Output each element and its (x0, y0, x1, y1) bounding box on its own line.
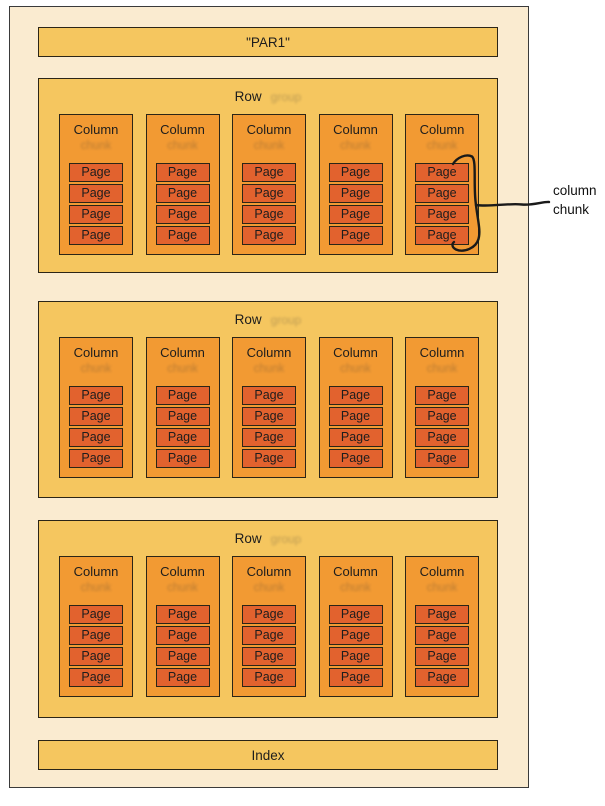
column-chunks-row: ColumnchunkPagePagePagePageColumnchunkPa… (59, 114, 479, 255)
pages-stack: PagePagePagePage (242, 605, 296, 687)
page-box: Page (329, 407, 383, 426)
row-group-label-text: Row (235, 531, 262, 546)
erased-text-remnant: chunk (147, 363, 219, 375)
column-chunk-box: ColumnchunkPagePagePagePage (319, 556, 393, 697)
erased-text-remnant: group (271, 532, 302, 546)
erased-text-remnant: chunk (233, 140, 305, 152)
column-label: Column (233, 564, 305, 579)
page-box: Page (242, 605, 296, 624)
page-box: Page (242, 647, 296, 666)
page-box: Page (415, 449, 469, 468)
pages-stack: PagePagePagePage (156, 605, 210, 687)
column-label: Column (320, 564, 392, 579)
erased-text-remnant: chunk (60, 363, 132, 375)
index-bar: Index (38, 740, 498, 770)
row-group: RowgroupColumnchunkPagePagePagePageColum… (38, 78, 498, 273)
pages-stack: PagePagePagePage (329, 605, 383, 687)
page-box: Page (329, 449, 383, 468)
column-chunk-box: ColumnchunkPagePagePagePage (59, 556, 133, 697)
row-group-label: Rowgroup (39, 531, 497, 546)
column-chunks-row: ColumnchunkPagePagePagePageColumnchunkPa… (59, 337, 479, 478)
column-chunk-box: ColumnchunkPagePagePagePage (59, 337, 133, 478)
pages-stack: PagePagePagePage (329, 163, 383, 245)
page-box: Page (415, 647, 469, 666)
page-box: Page (156, 647, 210, 666)
page-box: Page (415, 205, 469, 224)
column-label: Column (320, 122, 392, 137)
pages-stack: PagePagePagePage (415, 386, 469, 468)
erased-text-remnant: chunk (406, 363, 478, 375)
page-box: Page (415, 407, 469, 426)
column-chunk-box: ColumnchunkPagePagePagePage (405, 337, 479, 478)
page-box: Page (329, 226, 383, 245)
page-box: Page (69, 205, 123, 224)
erased-text-remnant: chunk (60, 582, 132, 594)
par1-header-bar: "PAR1" (38, 27, 498, 57)
page-box: Page (329, 605, 383, 624)
page-box: Page (156, 386, 210, 405)
erased-text-remnant: chunk (406, 582, 478, 594)
row-group: RowgroupColumnchunkPagePagePagePageColum… (38, 301, 498, 498)
page-box: Page (69, 626, 123, 645)
column-chunks-row: ColumnchunkPagePagePagePageColumnchunkPa… (59, 556, 479, 697)
page-box: Page (69, 647, 123, 666)
erased-text-remnant: chunk (320, 582, 392, 594)
pages-stack: PagePagePagePage (415, 163, 469, 245)
column-label: Column (147, 122, 219, 137)
column-chunk-box: ColumnchunkPagePagePagePage (146, 337, 220, 478)
page-box: Page (415, 668, 469, 687)
erased-text-remnant: chunk (320, 140, 392, 152)
page-box: Page (242, 205, 296, 224)
column-chunk-box: ColumnchunkPagePagePagePage (146, 556, 220, 697)
erased-text-remnant: chunk (233, 363, 305, 375)
erased-text-remnant: group (271, 313, 302, 327)
erased-text-remnant: chunk (320, 363, 392, 375)
pages-stack: PagePagePagePage (242, 386, 296, 468)
page-box: Page (69, 605, 123, 624)
annotation-line-2: chunk (553, 200, 597, 219)
column-chunk-box: ColumnchunkPagePagePagePage (232, 337, 306, 478)
page-box: Page (156, 226, 210, 245)
page-box: Page (69, 226, 123, 245)
pages-stack: PagePagePagePage (329, 386, 383, 468)
parquet-file-box: "PAR1" RowgroupColumnchunkPagePagePagePa… (9, 6, 529, 788)
page-box: Page (242, 668, 296, 687)
page-box: Page (156, 449, 210, 468)
page-box: Page (69, 449, 123, 468)
page-box: Page (329, 428, 383, 447)
column-chunk-box: ColumnchunkPagePagePagePage (232, 114, 306, 255)
page-box: Page (242, 386, 296, 405)
row-group: RowgroupColumnchunkPagePagePagePageColum… (38, 520, 498, 718)
page-box: Page (415, 184, 469, 203)
page-box: Page (329, 205, 383, 224)
page-box: Page (415, 163, 469, 182)
page-box: Page (69, 184, 123, 203)
page-box: Page (329, 184, 383, 203)
annotation-line-1: column (553, 181, 597, 200)
column-chunk-annotation-label: column chunk (553, 181, 597, 219)
column-chunk-box: ColumnchunkPagePagePagePage (405, 556, 479, 697)
page-box: Page (329, 668, 383, 687)
pages-stack: PagePagePagePage (69, 386, 123, 468)
row-group-label-text: Row (235, 312, 262, 327)
column-chunk-box: ColumnchunkPagePagePagePage (59, 114, 133, 255)
pages-stack: PagePagePagePage (69, 163, 123, 245)
page-box: Page (156, 163, 210, 182)
index-label: Index (251, 748, 284, 763)
page-box: Page (242, 449, 296, 468)
column-label: Column (406, 345, 478, 360)
page-box: Page (69, 428, 123, 447)
page-box: Page (415, 386, 469, 405)
page-box: Page (329, 163, 383, 182)
column-label: Column (233, 122, 305, 137)
page-box: Page (156, 668, 210, 687)
page-box: Page (156, 605, 210, 624)
column-label: Column (233, 345, 305, 360)
pages-stack: PagePagePagePage (156, 163, 210, 245)
page-box: Page (242, 407, 296, 426)
page-box: Page (415, 626, 469, 645)
erased-text-remnant: group (271, 90, 302, 104)
page-box: Page (156, 407, 210, 426)
page-box: Page (242, 626, 296, 645)
page-box: Page (69, 163, 123, 182)
row-group-label: Rowgroup (39, 89, 497, 104)
page-box: Page (156, 184, 210, 203)
column-label: Column (147, 345, 219, 360)
page-box: Page (242, 428, 296, 447)
erased-text-remnant: chunk (406, 140, 478, 152)
page-box: Page (242, 226, 296, 245)
par1-header-label: "PAR1" (246, 35, 290, 50)
page-box: Page (242, 184, 296, 203)
column-label: Column (60, 564, 132, 579)
column-label: Column (406, 122, 478, 137)
page-box: Page (69, 386, 123, 405)
column-label: Column (60, 122, 132, 137)
diagram-canvas: "PAR1" RowgroupColumnchunkPagePagePagePa… (0, 0, 605, 806)
column-label: Column (60, 345, 132, 360)
page-box: Page (415, 226, 469, 245)
row-group-label-text: Row (235, 89, 262, 104)
page-box: Page (156, 626, 210, 645)
erased-text-remnant: chunk (147, 582, 219, 594)
page-box: Page (329, 647, 383, 666)
row-group-label: Rowgroup (39, 312, 497, 327)
page-box: Page (415, 605, 469, 624)
page-box: Page (415, 428, 469, 447)
column-chunk-box: ColumnchunkPagePagePagePage (405, 114, 479, 255)
pages-stack: PagePagePagePage (415, 605, 469, 687)
page-box: Page (329, 386, 383, 405)
column-label: Column (147, 564, 219, 579)
erased-text-remnant: chunk (147, 140, 219, 152)
page-box: Page (156, 428, 210, 447)
page-box: Page (242, 163, 296, 182)
pages-stack: PagePagePagePage (69, 605, 123, 687)
column-chunk-box: ColumnchunkPagePagePagePage (146, 114, 220, 255)
erased-text-remnant: chunk (60, 140, 132, 152)
column-chunk-box: ColumnchunkPagePagePagePage (319, 114, 393, 255)
column-label: Column (406, 564, 478, 579)
page-box: Page (69, 668, 123, 687)
column-chunk-box: ColumnchunkPagePagePagePage (319, 337, 393, 478)
column-label: Column (320, 345, 392, 360)
page-box: Page (69, 407, 123, 426)
erased-text-remnant: chunk (233, 582, 305, 594)
column-chunk-box: ColumnchunkPagePagePagePage (232, 556, 306, 697)
pages-stack: PagePagePagePage (156, 386, 210, 468)
page-box: Page (156, 205, 210, 224)
pages-stack: PagePagePagePage (242, 163, 296, 245)
page-box: Page (329, 626, 383, 645)
